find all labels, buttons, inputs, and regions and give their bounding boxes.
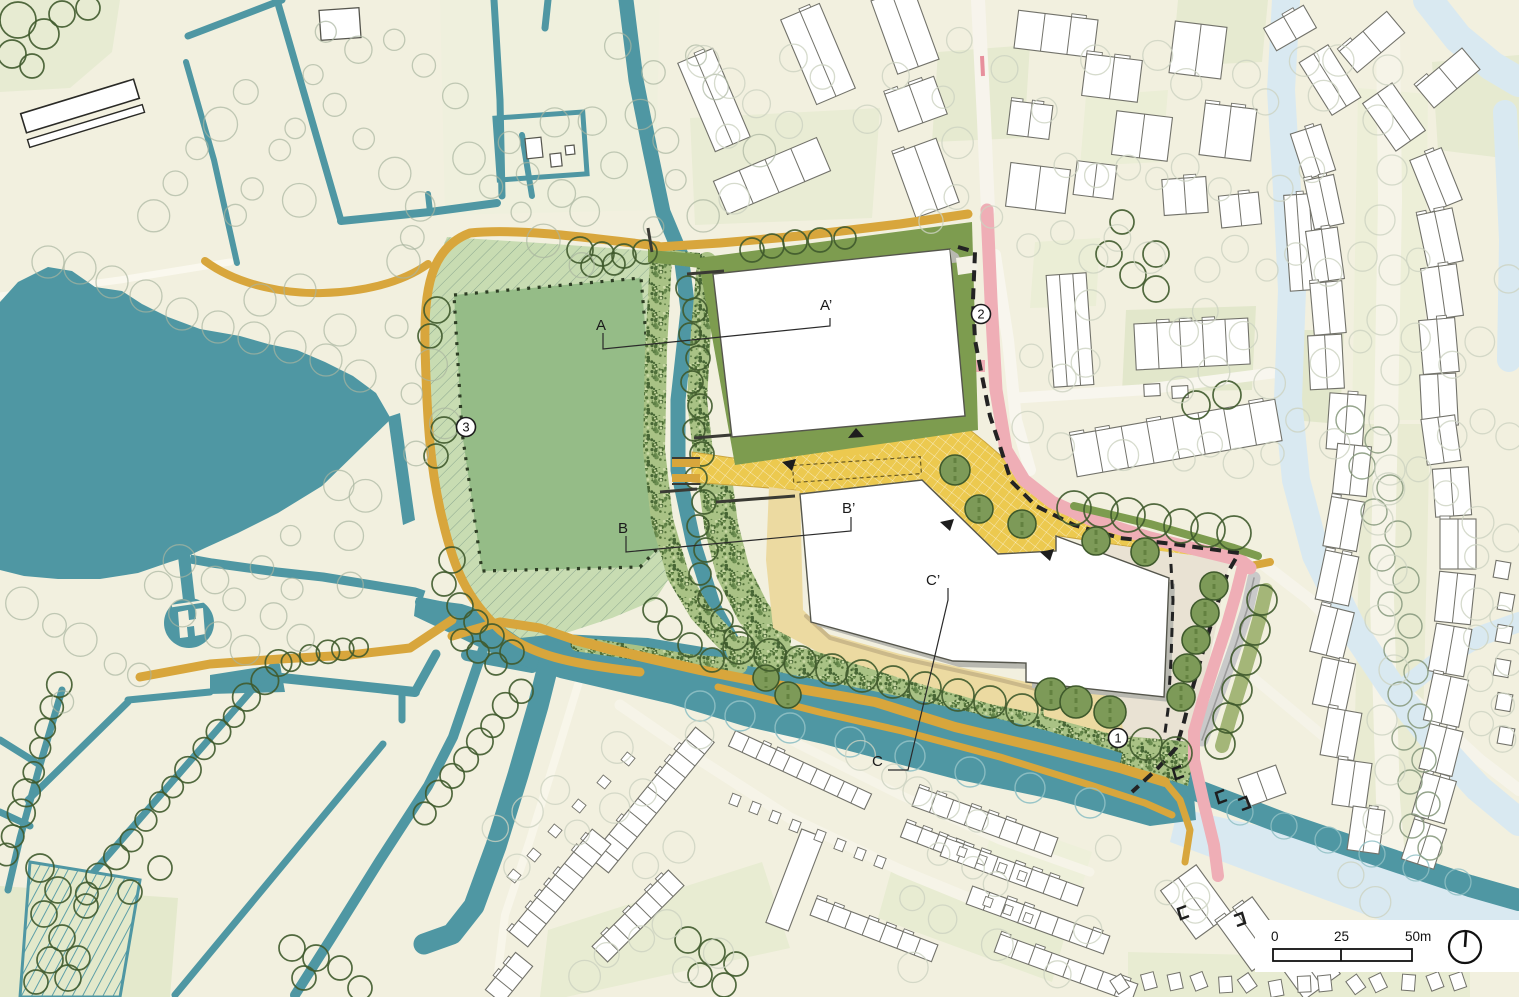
svg-text:B’: B’: [842, 500, 855, 517]
svg-text:A’: A’: [820, 297, 832, 314]
svg-text:A: A: [596, 317, 606, 334]
svg-text:C’: C’: [926, 572, 940, 589]
svg-text:B: B: [618, 520, 628, 537]
svg-text:3: 3: [462, 420, 469, 435]
svg-text:0: 0: [1271, 929, 1279, 944]
svg-text:2: 2: [977, 307, 984, 322]
svg-text:25: 25: [1334, 929, 1349, 944]
svg-text:C: C: [872, 753, 883, 770]
svg-text:1: 1: [1114, 731, 1121, 746]
svg-text:50m: 50m: [1405, 929, 1431, 944]
